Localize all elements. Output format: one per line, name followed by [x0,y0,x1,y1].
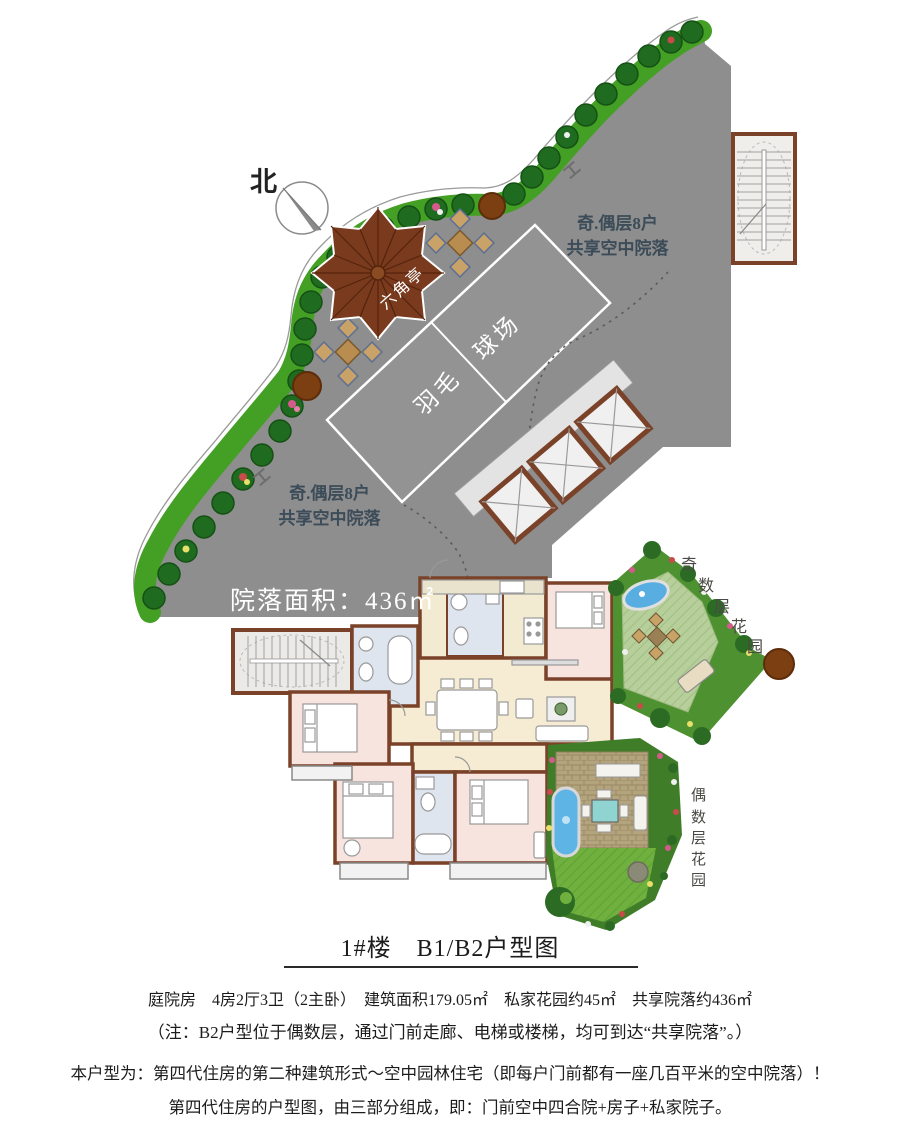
north-label: 北 [250,164,277,202]
garden-even-floor [545,738,682,931]
garden-odd-label: 奇 [681,551,697,575]
specs-line: 庭院房 4房2厅3卫（2主卧） 建筑面积179.05㎡ 私家花园约45㎡ 共享院… [0,986,900,1010]
floor-plan-canvas [0,0,900,1145]
north-compass-icon [276,182,328,234]
rock-icon [628,862,648,882]
description-line-1: 本户型为：第四代住房的第二种建筑形式～空中园林住宅（即每户门前都有一座几百平米的… [0,1060,900,1084]
description-line-2: 第四代住房的户型图，由三部分组成，即：门前空中四合院+房子+私家院子。 [0,1094,900,1118]
courtyard-note-top: 奇.偶层8户 共享空中院落 [540,212,695,261]
shared-courtyard-platform [134,17,731,617]
page-title: 1#楼 B1/B2户型图 [0,928,900,963]
floorplan-page: 北 六角亭 羽毛 球场 奇.偶层8户 共享空中院落 奇.偶层8户 共享空中院落 … [0,0,900,1145]
courtyard-note-bottom: 奇.偶层8户 共享空中院落 [252,482,407,531]
garden-even-label: 偶 [691,784,706,805]
bush-icon [545,887,575,917]
courtyard-area-label: 院落面积：436㎡ [230,584,436,619]
title-underline [284,966,638,968]
staircase-left [233,630,352,693]
staircase-top-right [733,134,795,263]
tree-icon [764,649,794,679]
note-line: （注：B2户型位于偶数层，通过门前走廊、电梯或楼梯，均可到达“共享院落”。） [0,1018,900,1043]
room-corridor [412,744,547,772]
